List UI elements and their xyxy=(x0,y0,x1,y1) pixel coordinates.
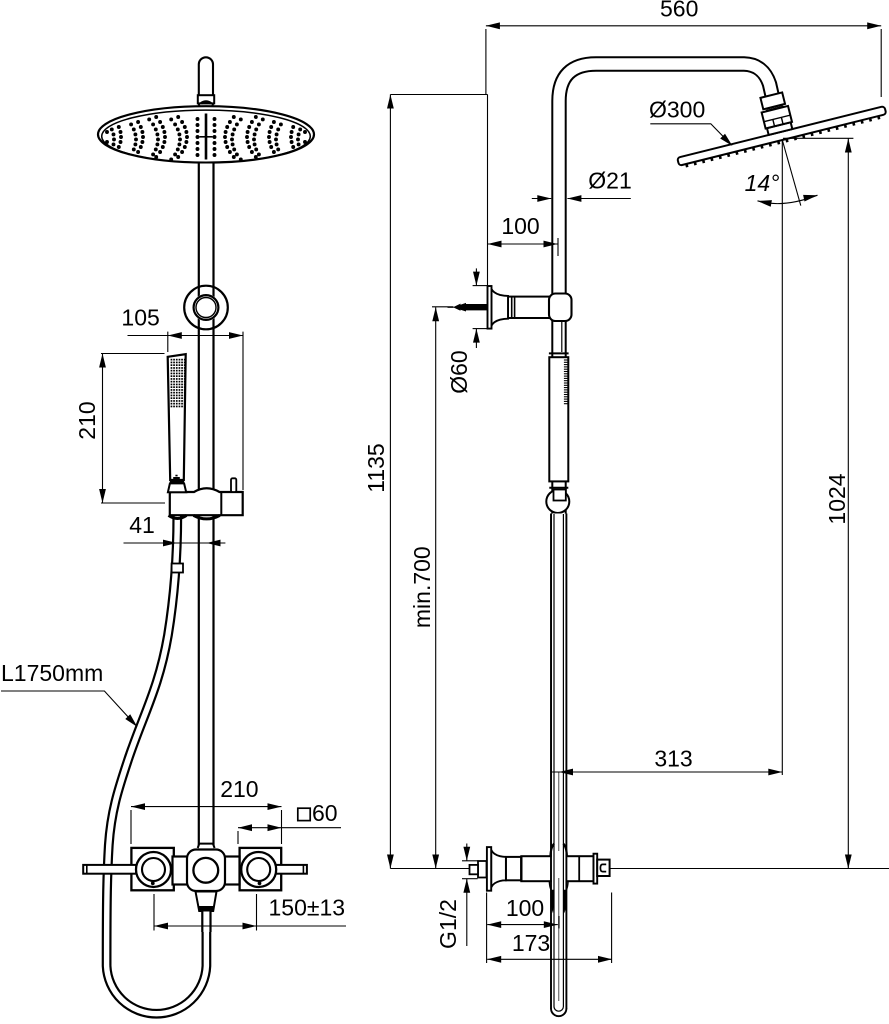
svg-text:210: 210 xyxy=(74,401,100,439)
svg-text:100: 100 xyxy=(501,213,539,239)
svg-text:Ø21: Ø21 xyxy=(588,168,631,194)
svg-text:Ø60: Ø60 xyxy=(446,350,472,393)
svg-text:313: 313 xyxy=(654,746,692,772)
svg-text:210: 210 xyxy=(220,776,258,802)
svg-text:105: 105 xyxy=(121,305,159,331)
svg-text:560: 560 xyxy=(660,0,698,22)
svg-text:Ø300: Ø300 xyxy=(649,97,705,123)
svg-text:150±13: 150±13 xyxy=(269,895,346,921)
svg-text:G1/2: G1/2 xyxy=(435,899,461,949)
svg-text:100: 100 xyxy=(506,895,544,921)
svg-text:60: 60 xyxy=(312,800,338,826)
svg-text:1135: 1135 xyxy=(363,443,389,492)
svg-text:41: 41 xyxy=(129,512,155,538)
svg-text:1024: 1024 xyxy=(824,473,850,524)
svg-text:14°: 14° xyxy=(745,170,780,196)
svg-text:L1750mm: L1750mm xyxy=(1,660,103,686)
svg-text:173: 173 xyxy=(512,930,550,956)
svg-text:min.700: min.700 xyxy=(409,546,435,628)
